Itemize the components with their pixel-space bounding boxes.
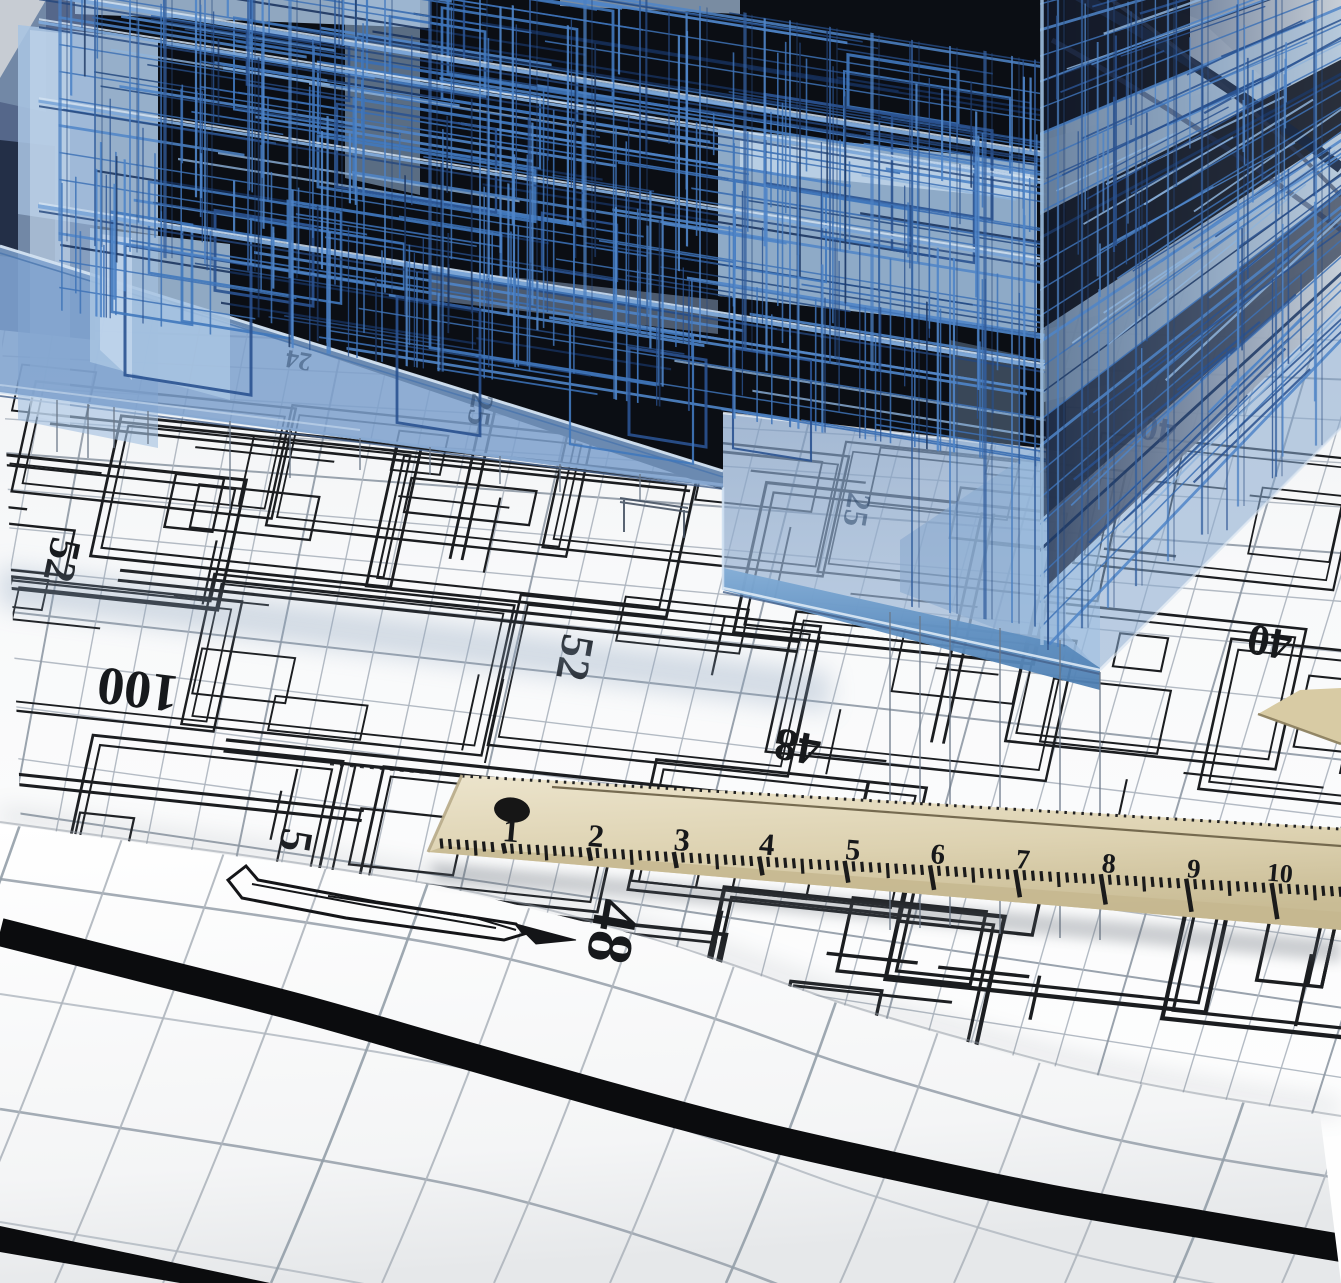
svg-text:25: 25 — [835, 490, 877, 530]
svg-text:24: 24 — [283, 344, 314, 377]
svg-text:40: 40 — [1137, 407, 1179, 453]
svg-text:25: 25 — [460, 391, 501, 429]
svg-text:7: 7 — [1015, 844, 1032, 876]
svg-text:4: 4 — [758, 826, 776, 862]
svg-text:9: 9 — [1186, 853, 1202, 884]
svg-text:5: 5 — [844, 833, 862, 867]
svg-text:48: 48 — [573, 894, 654, 969]
svg-text:2: 2 — [587, 817, 606, 854]
svg-text:3: 3 — [673, 821, 692, 858]
svg-text:8: 8 — [1101, 848, 1118, 880]
svg-text:48: 48 — [770, 718, 824, 776]
svg-text:1: 1 — [501, 813, 521, 850]
svg-text:100: 100 — [94, 655, 182, 724]
svg-text:40: 40 — [1244, 614, 1296, 670]
svg-text:10: 10 — [1266, 858, 1294, 889]
svg-text:6: 6 — [929, 838, 946, 871]
